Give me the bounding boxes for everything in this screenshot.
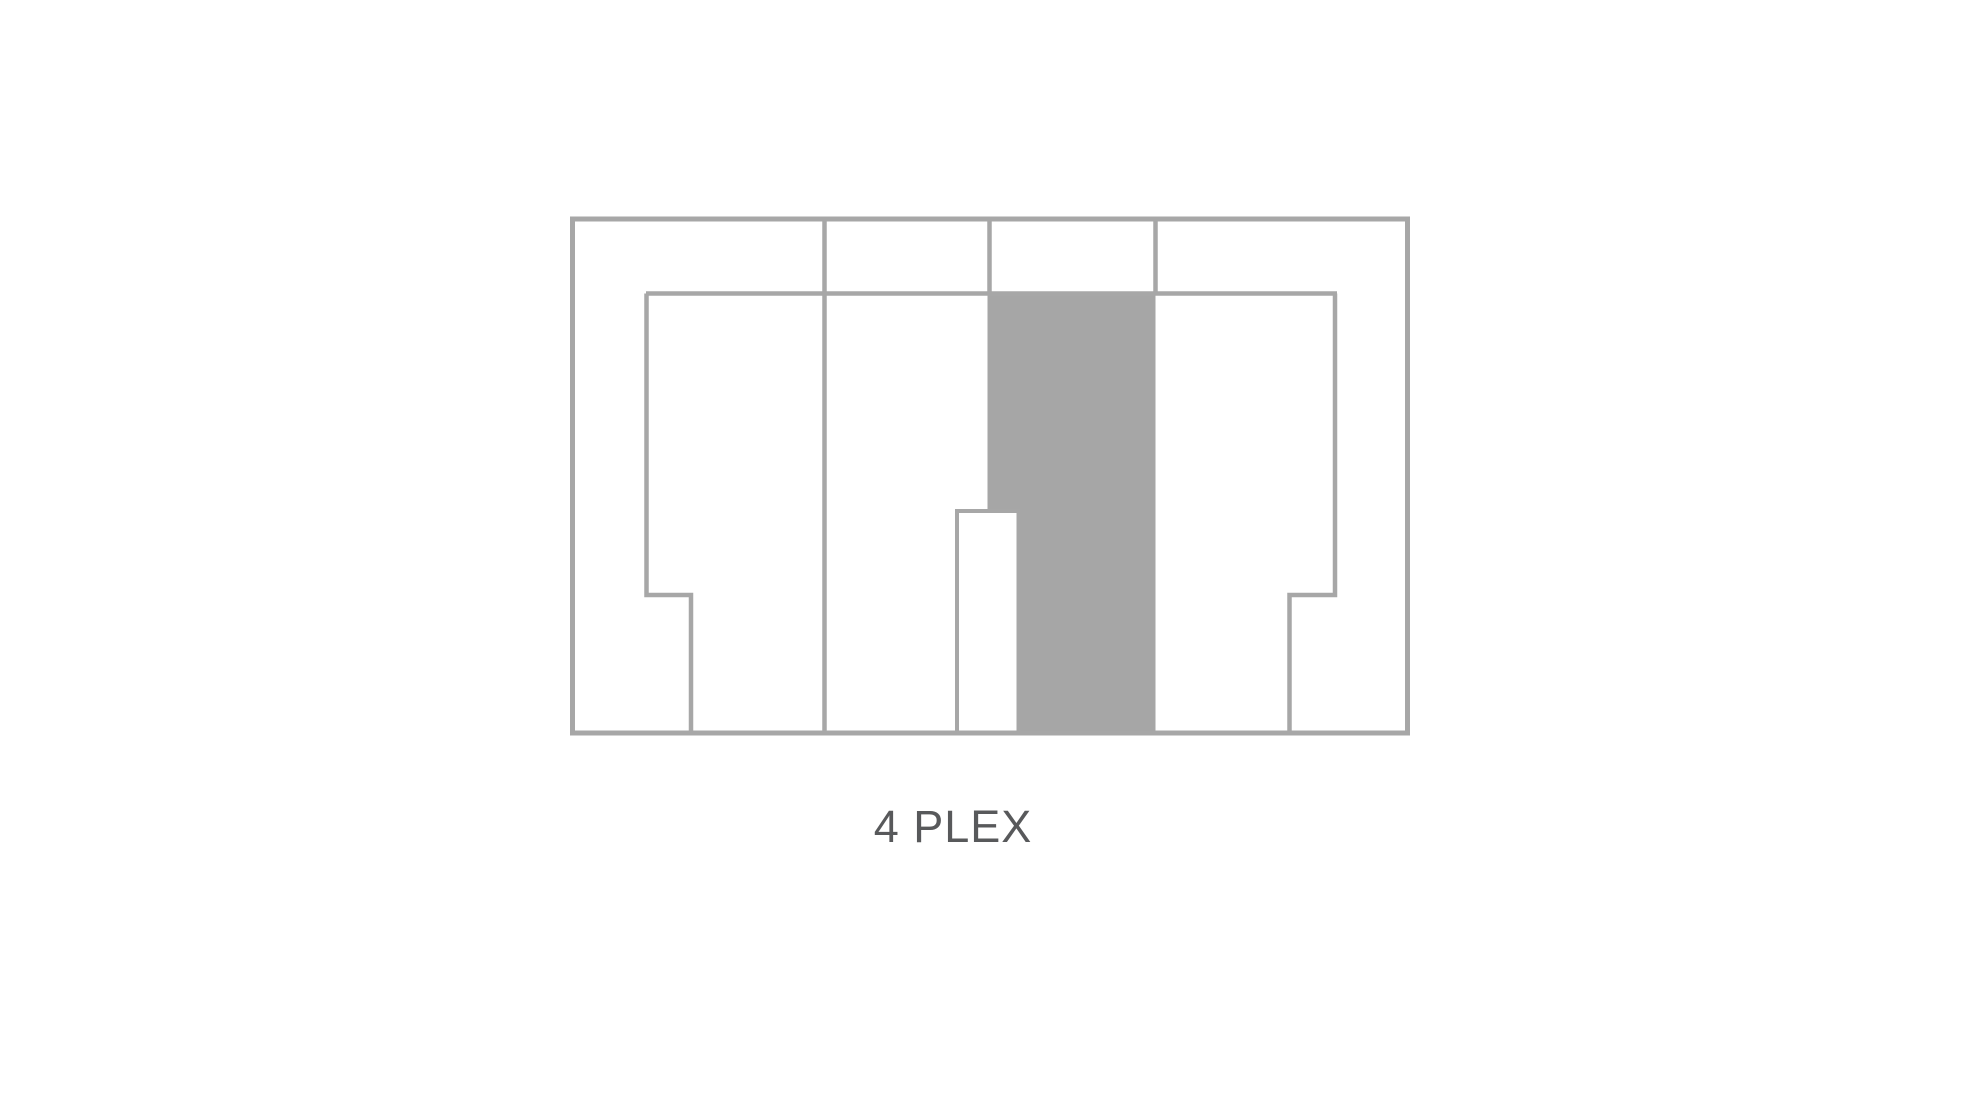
diagram-title: 4 PLEX	[874, 802, 1033, 852]
center-closet	[957, 511, 1019, 733]
right-unit-inner-wall	[1290, 294, 1336, 734]
page-canvas: 4 PLEX	[0, 0, 1980, 1115]
floorplan-svg	[0, 0, 1980, 1115]
left-unit-inner-wall	[647, 294, 692, 734]
